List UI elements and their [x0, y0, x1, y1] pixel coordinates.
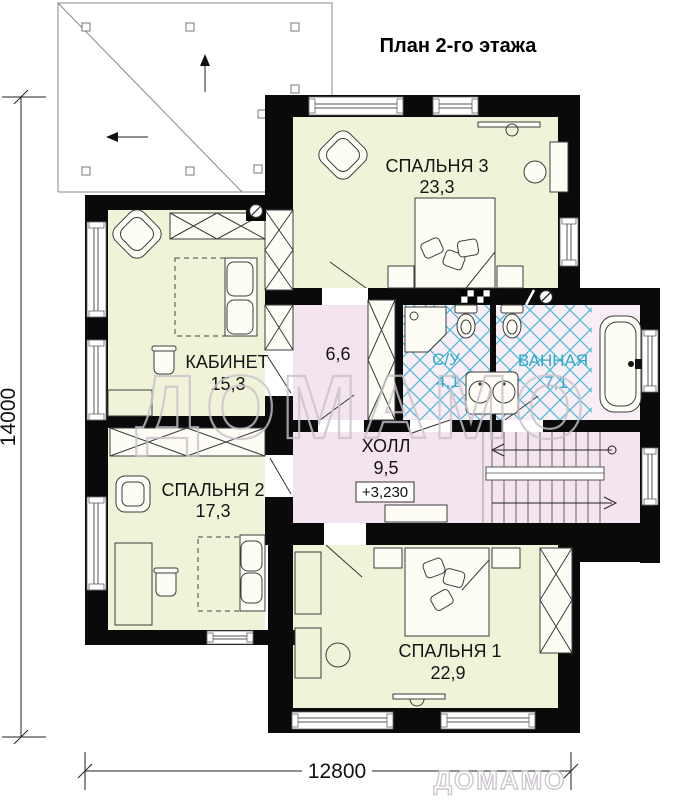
mirror-icon [524, 161, 546, 183]
elevation-mark: +3,230 [362, 484, 408, 501]
window [560, 218, 578, 266]
dimension-width: 12800 [308, 760, 366, 783]
window [207, 631, 253, 644]
bedroom1-label: СПАЛЬНЯ 1 [399, 641, 502, 661]
bathtub-icon [600, 316, 642, 412]
dimension-left: 14000 [0, 90, 46, 744]
nightstand-icon [497, 266, 523, 288]
page-title: План 2-го этажа [380, 35, 538, 57]
slope-arrow-left-icon [106, 132, 148, 142]
nightstand-icon [492, 548, 520, 568]
hall-area: 9,5 [373, 458, 398, 478]
wardrobe-icon [265, 210, 293, 290]
window [87, 222, 106, 317]
nightstand-icon [388, 266, 414, 288]
dimension-height: 14000 [0, 388, 20, 446]
bedroom2-label: СПАЛЬНЯ 2 [162, 480, 265, 500]
window [642, 448, 658, 505]
window [441, 712, 535, 729]
window [433, 97, 478, 115]
hall-cabinet-icon [385, 505, 447, 522]
desk-chair-icon [154, 568, 178, 596]
armchair-icon [116, 476, 150, 512]
window [87, 340, 106, 420]
bed-icon [405, 548, 489, 636]
bed-icon [415, 198, 495, 288]
window [292, 712, 393, 729]
watermark-large: ДОМАМО [135, 358, 590, 458]
window [642, 330, 658, 392]
nightstand-icon [374, 548, 402, 568]
wardrobe-icon [265, 305, 293, 350]
stair-rail [486, 467, 604, 480]
window [309, 97, 403, 115]
floor-plan: СПАЛЬНЯ 3 23,3 КАБИНЕТ 15,3 6,6 С/У 4,1 … [0, 0, 682, 800]
window [87, 497, 106, 590]
watermark-small: ДОМАМО [433, 765, 566, 795]
wardrobe-icon [540, 548, 572, 653]
floor-plan-page: СПАЛЬНЯ 3 23,3 КАБИНЕТ 15,3 6,6 С/У 4,1 … [0, 0, 682, 800]
bedroom3-area: 23,3 [419, 177, 454, 197]
cabinet-icon [550, 142, 568, 192]
toilet-icon [455, 305, 477, 338]
toilet-icon [501, 305, 523, 338]
bedroom1-area: 22,9 [430, 663, 465, 683]
bedroom3-label: СПАЛЬНЯ 3 [386, 156, 489, 176]
bedroom2-area: 17,3 [195, 501, 230, 521]
slope-arrow-up-icon [200, 54, 210, 92]
vent-channel-icon [246, 201, 266, 221]
